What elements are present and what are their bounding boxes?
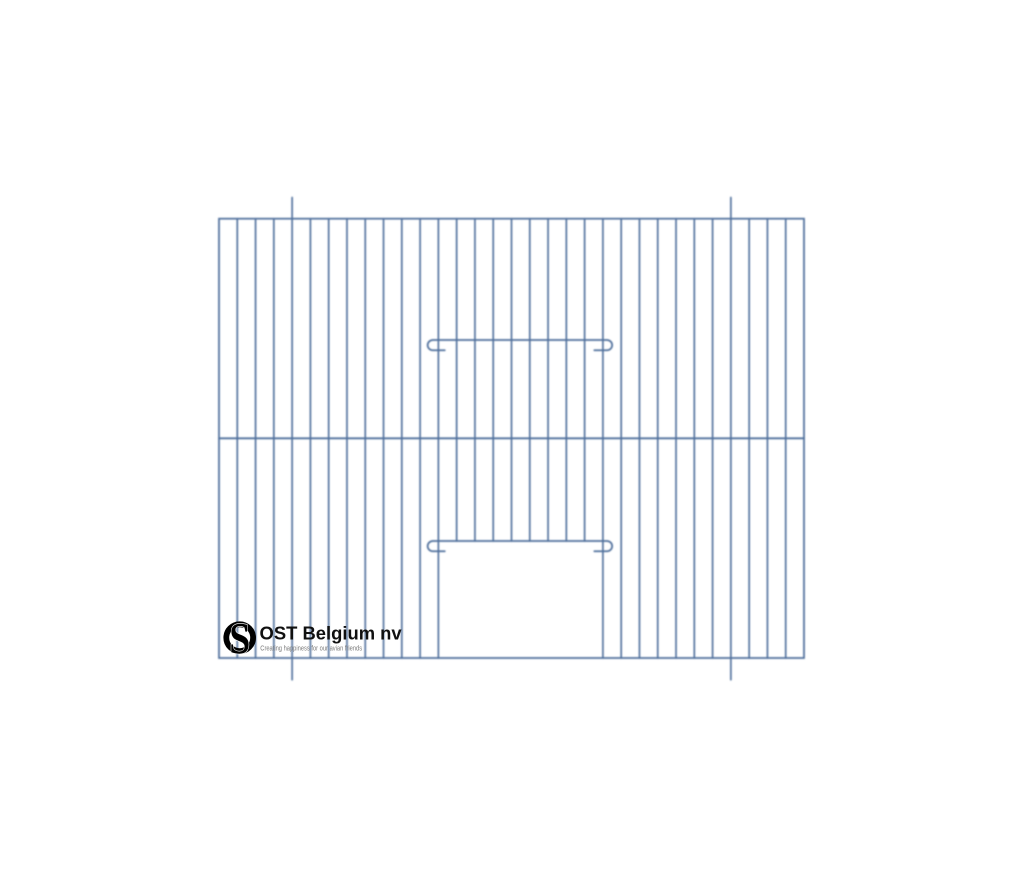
svg-text:Creating happiness for our avi: Creating happiness for our avian friends bbox=[260, 645, 362, 653]
svg-text:OST Belgium nv: OST Belgium nv bbox=[260, 622, 403, 643]
svg-text:S: S bbox=[229, 613, 250, 663]
